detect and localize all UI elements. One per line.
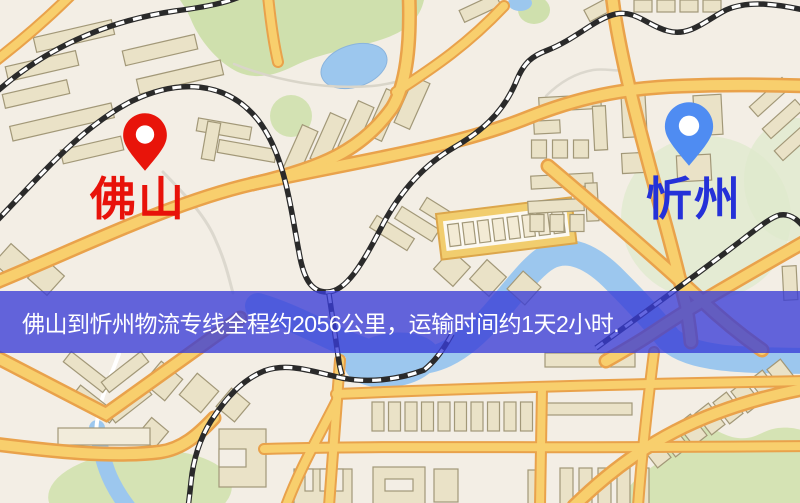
logistics-route-map: 佛山 忻州 佛山到忻州物流专线全程约2056公里，运输时间约1天2小时. [0, 0, 800, 503]
map-pin-icon [663, 101, 715, 167]
map-canvas [0, 0, 800, 503]
destination-pin [663, 101, 715, 172]
map-pin-icon [122, 111, 168, 173]
destination-city-label: 忻州 [614, 176, 774, 222]
origin-city-label: 佛山 [58, 176, 218, 222]
route-info-text: 佛山到忻州物流专线全程约2056公里，运输时间约1天2小时. [0, 305, 619, 339]
origin-pin [122, 111, 168, 178]
route-info-banner: 佛山到忻州物流专线全程约2056公里，运输时间约1天2小时. [0, 291, 800, 353]
